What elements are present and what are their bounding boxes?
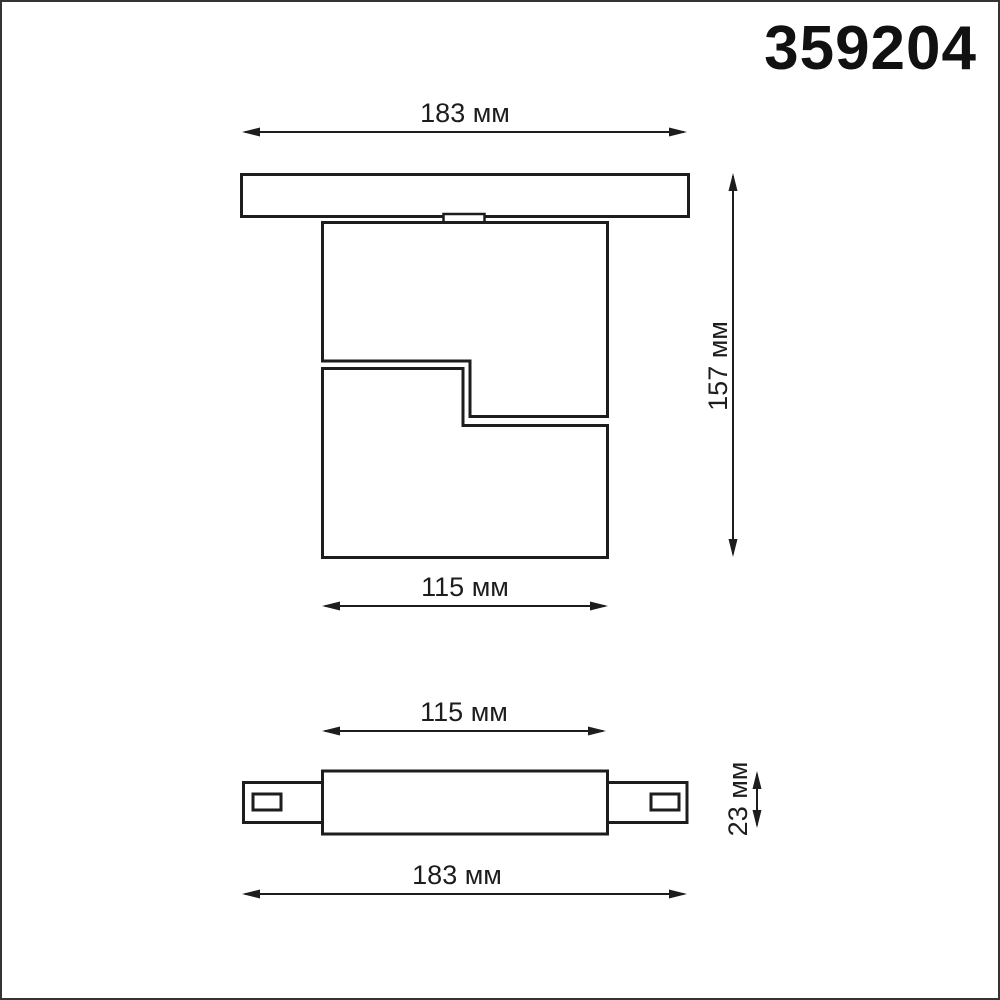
arrow-left-icon <box>322 727 340 736</box>
arrow-right-icon <box>588 727 606 736</box>
arrow-left-icon <box>242 128 260 137</box>
track-body <box>323 771 608 834</box>
arrow-left-icon <box>242 890 260 899</box>
dim-body-width-bottom: 115 мм <box>322 697 606 736</box>
dim-track-length-bottom: 183 мм <box>242 860 687 899</box>
arrow-right-icon <box>669 128 687 137</box>
dim-body-width-side: 115 мм <box>322 572 608 611</box>
arrow-down-icon <box>753 810 762 828</box>
dim-track-length-top: 183 мм <box>242 98 687 137</box>
technical-drawing: 183 мм 157 мм 115 мм <box>0 0 1000 1000</box>
arrow-down-icon <box>729 539 738 557</box>
dim-label-body-width-side: 115 мм <box>421 572 509 602</box>
bottom-view: 115 мм 23 мм 183 мм <box>242 697 762 899</box>
dim-height-right: 157 мм <box>703 173 738 557</box>
arrow-up-icon <box>753 771 762 789</box>
arrow-right-icon <box>669 890 687 899</box>
dim-label-body-width-bottom: 115 мм <box>420 697 508 727</box>
dim-depth-right: 23 мм <box>723 762 762 837</box>
contact-window-left <box>253 794 281 810</box>
dim-label-track-length-bottom: 183 мм <box>412 860 502 890</box>
track-profile <box>242 175 689 217</box>
dim-label-depth: 23 мм <box>723 762 753 837</box>
dimension-drawing-page: 359204 183 мм 157 <box>0 0 1000 1000</box>
contact-window-right <box>651 794 679 810</box>
dim-label-track-length-top: 183 мм <box>420 98 510 128</box>
arrow-up-icon <box>729 173 738 191</box>
side-view: 183 мм 157 мм 115 мм <box>242 98 738 611</box>
arrow-left-icon <box>322 602 340 611</box>
arrow-right-icon <box>590 602 608 611</box>
dim-label-height: 157 мм <box>703 321 733 411</box>
